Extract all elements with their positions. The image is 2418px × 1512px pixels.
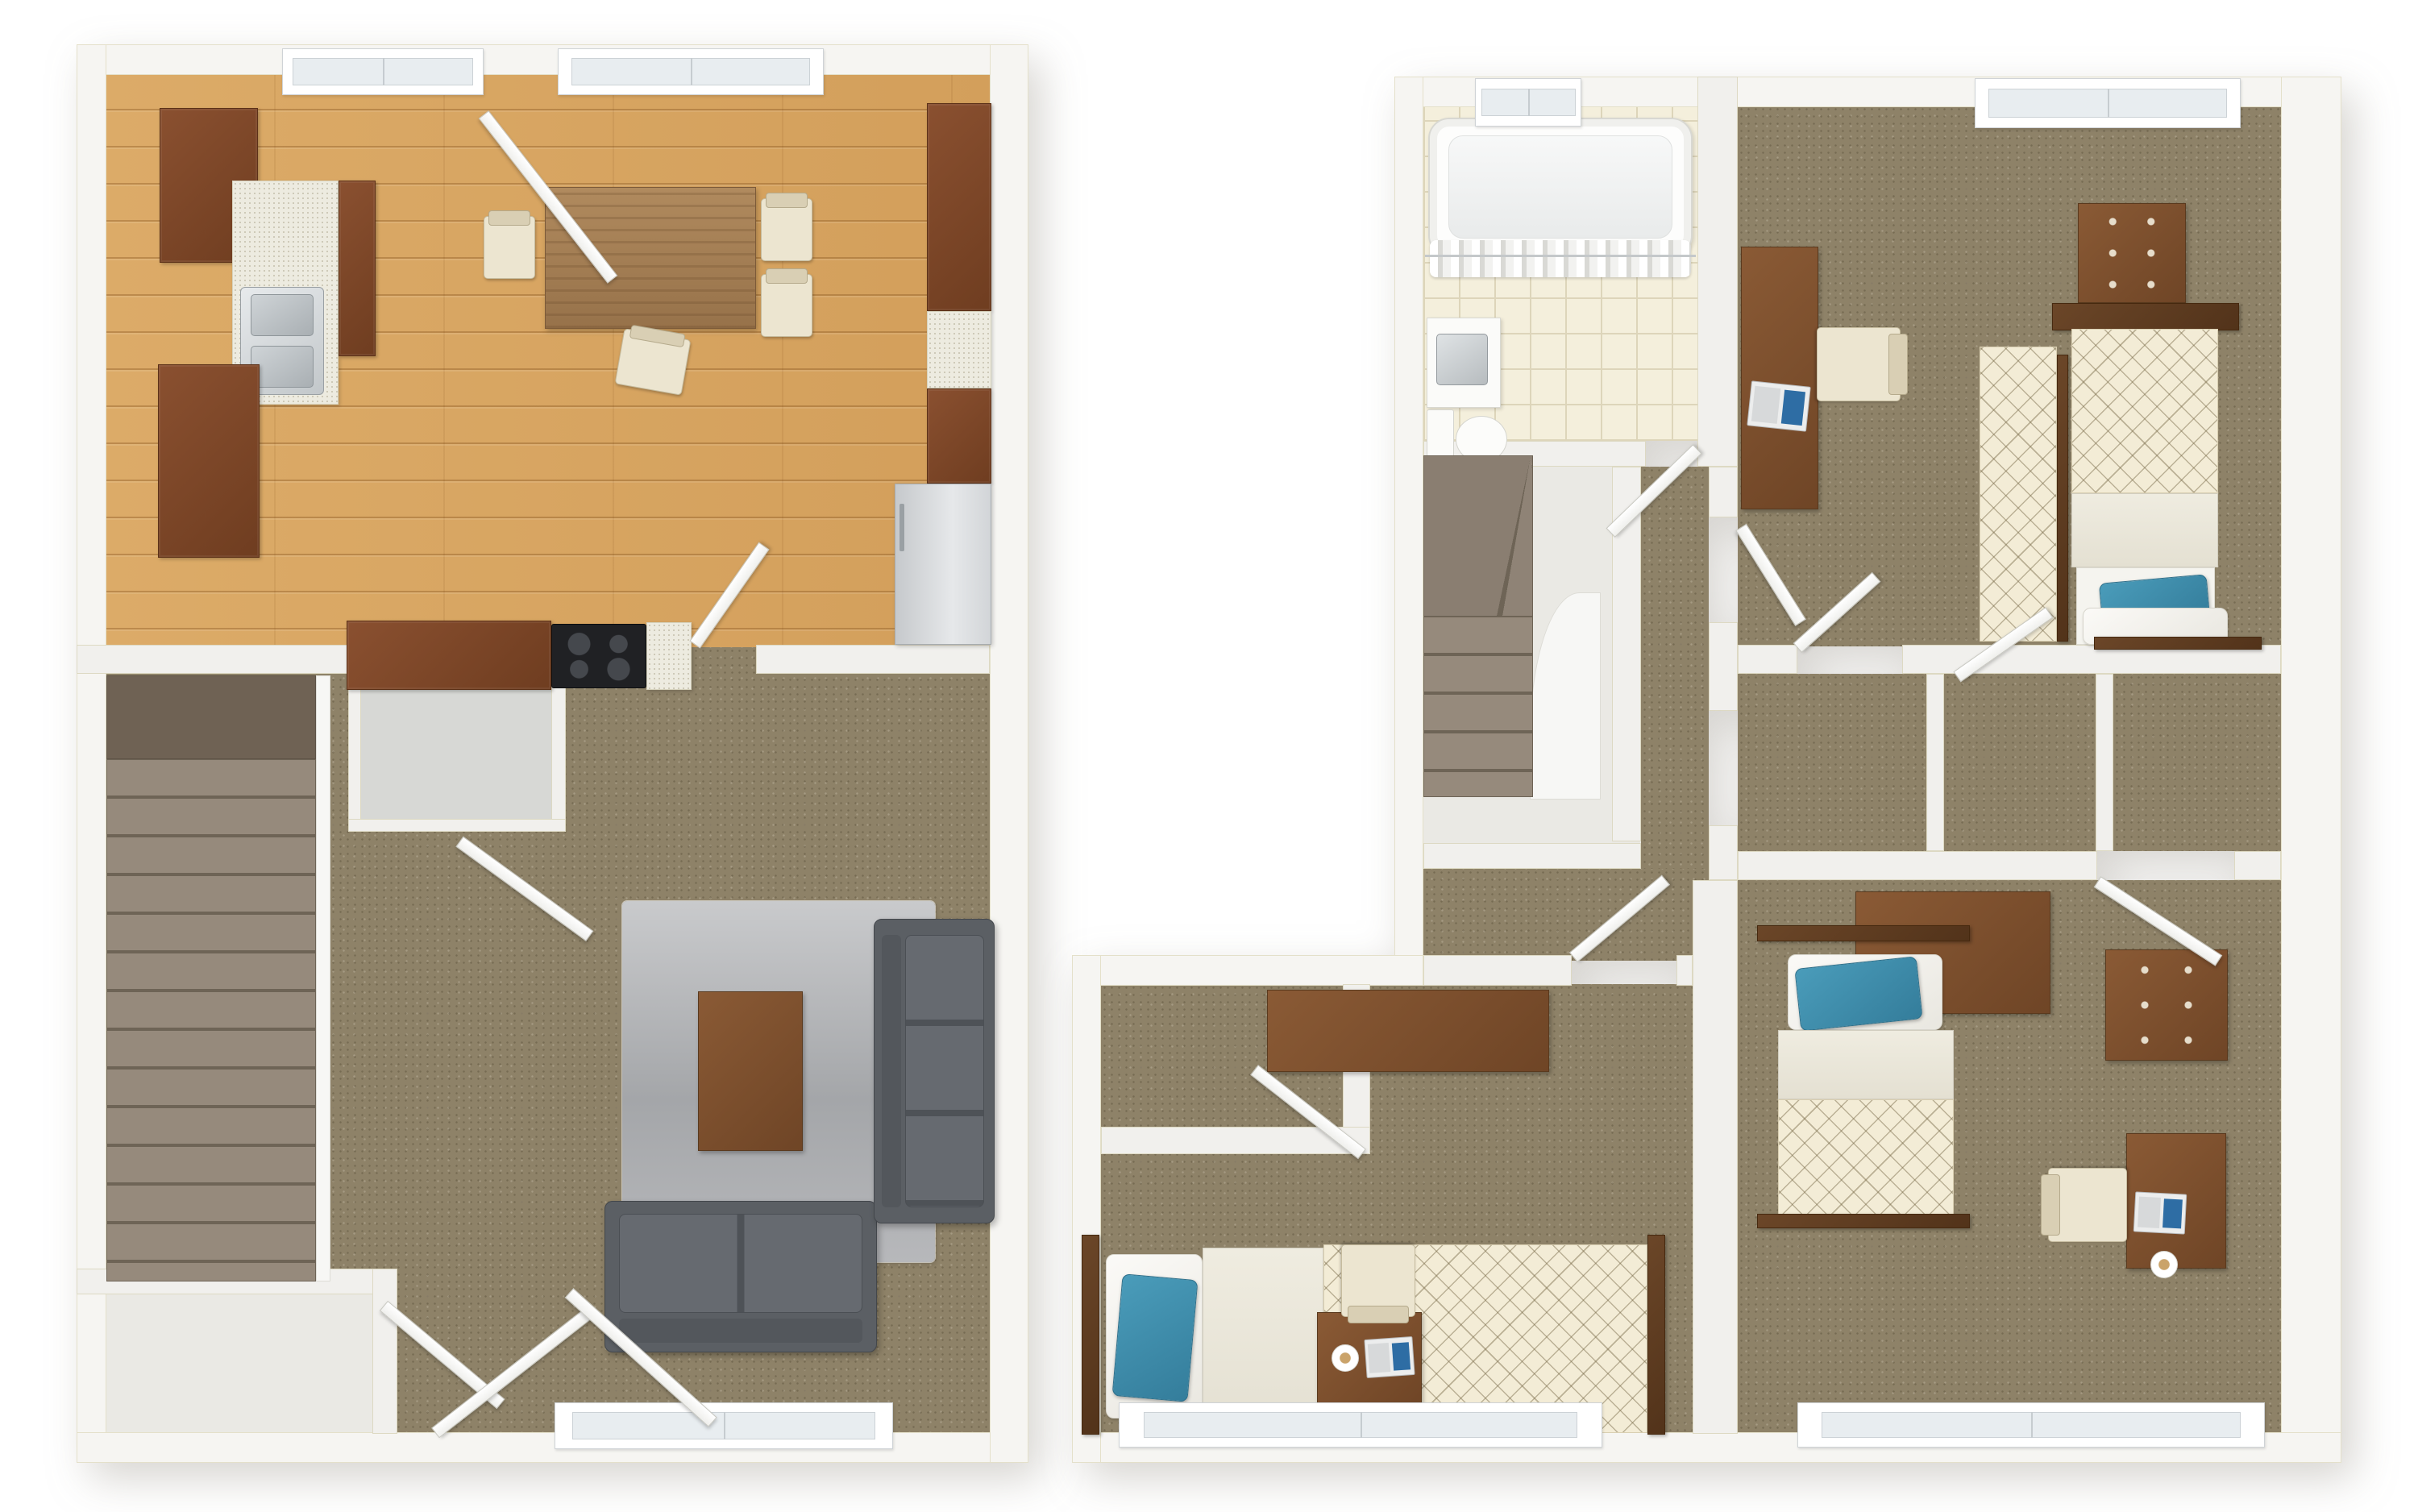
corridor-wall-seg3 (1709, 825, 1738, 880)
closet3-floor (2113, 674, 2281, 851)
bedroom3-chair (2048, 1168, 2127, 1242)
bedroom1-window (1975, 78, 2241, 128)
bedroom2-headboard (1082, 1235, 1099, 1435)
bedroom1-desk (1741, 247, 1818, 509)
bathroom-wall-right (1697, 77, 1738, 467)
bedroom2-3-divider (1693, 880, 1738, 1434)
bedroom2-laptop (1364, 1336, 1415, 1378)
bedroom2-footboard (1647, 1235, 1665, 1435)
bedroom2-pillow-blue (1112, 1273, 1199, 1402)
closet2-floor (1944, 674, 2096, 851)
closet-row-wall-bottom-seg2 (2234, 851, 2281, 880)
closet-divider-1 (1926, 674, 1944, 851)
bedroom1-dresser (2078, 203, 2186, 303)
bedroom3-laptop (2133, 1191, 2187, 1234)
bedroom3-footboard (1757, 1214, 1970, 1228)
stairs-straight-run (1423, 617, 1533, 797)
bedroom3-chest (2105, 949, 2228, 1061)
bedroom3-headboard (1757, 925, 1970, 941)
bedroom2-plate (1332, 1344, 1359, 1372)
bathtub (1428, 118, 1693, 256)
bedroom1-bed-sheet (2071, 493, 2218, 567)
bedroom2-wall-top-seg1 (1423, 955, 1572, 986)
outer-wall-right (2281, 77, 2341, 1463)
bedroom1-footboard (2094, 637, 2262, 650)
bedroom1-chair (1817, 327, 1901, 401)
bedroom3-bed-quilt (1778, 1099, 1954, 1215)
bedroom3-bed-sheet (1778, 1030, 1954, 1099)
bedroom2-wall-top-seg2 (1676, 955, 1693, 986)
corridor-wall-seg1 (1709, 467, 1738, 517)
closet-row-wall-bottom-seg1 (1738, 851, 2097, 880)
bathroom-sink-basin (1436, 334, 1488, 385)
bedroom3-plate (2150, 1251, 2178, 1278)
bedroom2-dresser (1267, 990, 1549, 1072)
bedroom2-window (1119, 1402, 1602, 1448)
corridor-wall-seg2 (1709, 622, 1738, 711)
bedroom1-bed-quilt (2071, 329, 2218, 493)
bedroom1-wall-bottom-seg1 (1738, 645, 1797, 674)
bedroom3-window (1797, 1402, 2265, 1448)
closet-divider-2 (2096, 674, 2113, 851)
floor-plan-canvas (0, 0, 2418, 1512)
stairwell-wall-bottom (1423, 843, 1641, 869)
second-floor-plan (0, 0, 2418, 1512)
stairs-winder-fan (1423, 455, 1533, 617)
bathroom-skylight (1475, 78, 1581, 127)
bedroom1-laptop (1747, 380, 1810, 431)
outer-wall-left-upper (1394, 77, 1423, 984)
extension-wall-top (1072, 955, 1423, 986)
bedroom3-pillow-blue (1794, 956, 1922, 1031)
bedroom1-bed-rail (2057, 355, 2068, 642)
bedroom2-chair (1341, 1244, 1415, 1317)
bedroom1-bed2-quilt (1980, 347, 2057, 642)
closet1-floor (1738, 674, 1926, 851)
bedroom1-headboard-shelf (2052, 303, 2239, 330)
shower-curtain (1430, 240, 1691, 277)
